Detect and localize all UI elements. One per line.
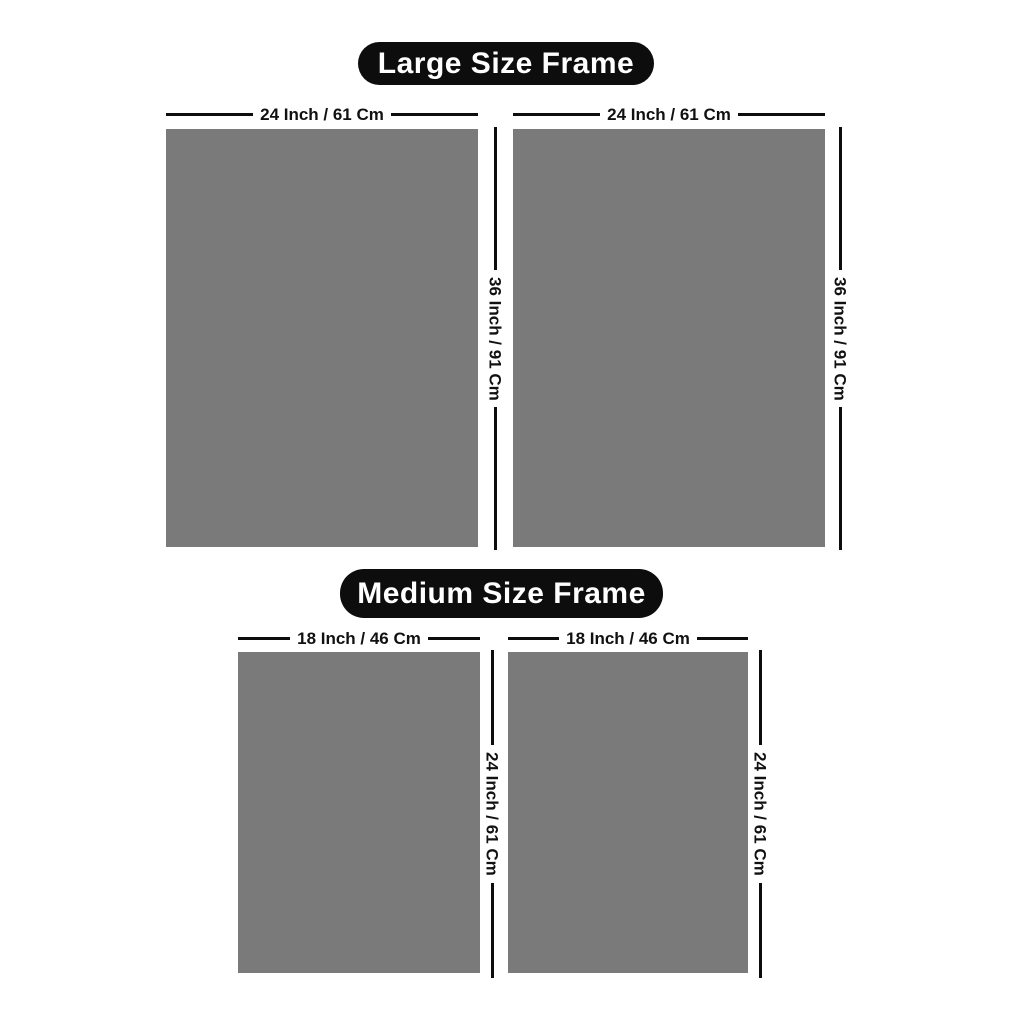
- dimension-line: [391, 113, 478, 116]
- height-dimension-label: 36 Inch / 91 Cm: [832, 277, 849, 401]
- dimension-line: [428, 637, 480, 640]
- large-right-frame-preview: [513, 129, 825, 547]
- height-dimension-label: 24 Inch / 61 Cm: [484, 752, 501, 876]
- height-dimension-label: 24 Inch / 61 Cm: [752, 752, 769, 876]
- dimension-line: [238, 637, 290, 640]
- large-size-title: Large Size Frame: [378, 47, 634, 81]
- dimension-line: [839, 127, 842, 270]
- medium-right-width-dimension: 18 Inch / 46 Cm: [508, 627, 748, 649]
- large-size-title-badge: Large Size Frame: [358, 42, 654, 85]
- height-dimension-label: 36 Inch / 91 Cm: [487, 277, 504, 401]
- large-left-frame-preview: [166, 129, 478, 547]
- dimension-line: [494, 127, 497, 270]
- medium-left-width-dimension: 18 Inch / 46 Cm: [238, 627, 480, 649]
- large-right-height-dimension: 36 Inch / 91 Cm: [826, 127, 854, 550]
- dimension-line: [738, 113, 825, 116]
- large-left-height-dimension: 36 Inch / 91 Cm: [481, 127, 509, 550]
- dimension-line: [491, 650, 494, 745]
- dimension-line: [759, 883, 762, 978]
- medium-size-title-badge: Medium Size Frame: [340, 569, 663, 618]
- width-dimension-label: 18 Inch / 46 Cm: [297, 630, 421, 647]
- medium-left-frame-preview: [238, 652, 480, 973]
- dimension-line: [697, 637, 748, 640]
- medium-left-height-dimension: 24 Inch / 61 Cm: [478, 650, 506, 978]
- medium-size-title: Medium Size Frame: [357, 577, 646, 611]
- medium-right-height-dimension: 24 Inch / 61 Cm: [746, 650, 774, 978]
- dimension-line: [491, 883, 494, 978]
- dimension-line: [759, 650, 762, 745]
- width-dimension-label: 24 Inch / 61 Cm: [607, 106, 731, 123]
- dimension-line: [839, 407, 842, 550]
- medium-right-frame-preview: [508, 652, 748, 973]
- large-right-width-dimension: 24 Inch / 61 Cm: [513, 103, 825, 125]
- width-dimension-label: 18 Inch / 46 Cm: [566, 630, 690, 647]
- width-dimension-label: 24 Inch / 61 Cm: [260, 106, 384, 123]
- dimension-line: [494, 407, 497, 550]
- dimension-line: [513, 113, 600, 116]
- dimension-line: [166, 113, 253, 116]
- large-left-width-dimension: 24 Inch / 61 Cm: [166, 103, 478, 125]
- dimension-line: [508, 637, 559, 640]
- frame-size-guide: Large Size Frame 24 Inch / 61 Cm 24 Inch…: [0, 0, 1024, 1024]
